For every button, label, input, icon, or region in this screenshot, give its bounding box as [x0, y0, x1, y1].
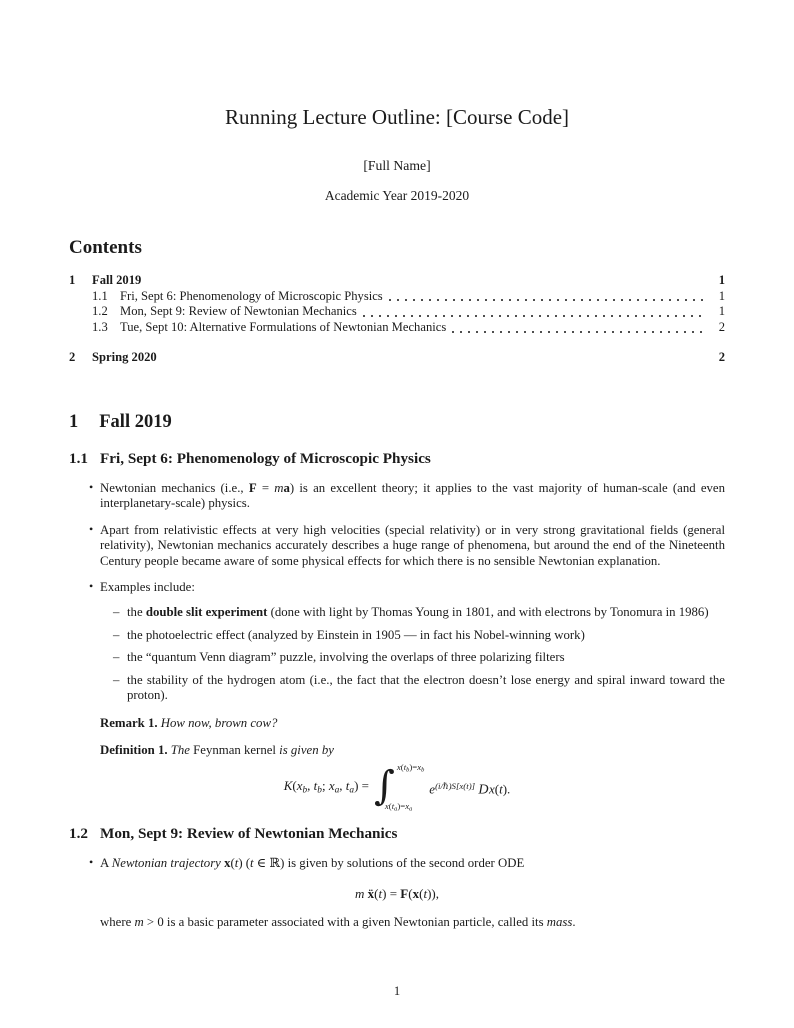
toc-entry-number: 1.2 — [92, 304, 120, 320]
feynman-kernel-equation: K(xb, tb; xa, ta) = ∫ x(tb)=xb x(ta)=xa … — [69, 760, 725, 816]
dash-icon: – — [113, 650, 119, 666]
contents-heading: Contents — [69, 236, 725, 259]
toc-entry-number: 1.1 — [92, 289, 120, 305]
integral-upper-limit: x(tb)=xb — [397, 762, 424, 776]
toc-entry-page: 2 — [711, 350, 725, 366]
integral-limits: x(tb)=xb x(ta)=xa — [397, 762, 424, 814]
subsection-heading-1-1: 1.1Fri, Sept 6: Phenomenology of Microsc… — [69, 449, 725, 469]
toc-entry-page: 2 — [711, 320, 725, 336]
bullet-icon: • — [89, 855, 93, 871]
document-title: Running Lecture Outline: [Course Code] — [69, 0, 725, 130]
toc-entry-page: 1 — [711, 289, 725, 305]
sub-item-text: the stability of the hydrogen atom (i.e.… — [127, 673, 725, 703]
integral-sign-icon: ∫ — [374, 766, 395, 806]
bullet-item: • A Newtonian trajectory x(t) (t ∈ ℝ) is… — [69, 856, 725, 872]
toc-entry-number: 1 — [69, 273, 92, 289]
sub-item-text: the photoelectric effect (analyzed by Ei… — [127, 628, 585, 642]
academic-year: Academic Year 2019-2020 — [69, 187, 725, 204]
page-number: 1 — [0, 984, 794, 1000]
toc-entry-sept-9: 1.2 Mon, Sept 9: Review of Newtonian Mec… — [69, 304, 725, 320]
toc-entry-sept-10: 1.3 Tue, Sept 10: Alternative Formulatio… — [69, 320, 725, 336]
subsection-title: Mon, Sept 9: Review of Newtonian Mechani… — [100, 825, 397, 842]
dash-icon: – — [113, 605, 119, 621]
bullet-icon: • — [89, 522, 93, 538]
bullet-text: Newtonian mechanics (i.e., F = ma) is an… — [100, 481, 725, 511]
bullet-item: • Examples include: — [69, 580, 725, 596]
bullet-text: A Newtonian trajectory x(t) (t ∈ ℝ) is g… — [100, 856, 524, 870]
sub-list-item: – the double slit experiment (done with … — [69, 605, 725, 621]
toc-entry-page: 1 — [711, 273, 725, 289]
bullet-icon: • — [89, 480, 93, 496]
toc-entry-fall-2019: 1 Fall 2019 1 — [69, 273, 725, 289]
toc-entry-label: Fall 2019 — [92, 273, 141, 289]
page-content: Running Lecture Outline: [Course Code] [… — [69, 0, 725, 930]
sub-list-item: – the stability of the hydrogen atom (i.… — [69, 673, 725, 704]
dash-icon: – — [113, 628, 119, 644]
section-title: Fall 2019 — [99, 412, 171, 432]
bullet-text: Examples include: — [100, 580, 195, 594]
document-page: Running Lecture Outline: [Course Code] [… — [0, 0, 794, 1028]
sub-item-text: the double slit experiment (done with li… — [127, 605, 709, 619]
bullet-icon: • — [89, 579, 93, 595]
equation-integrand: e(i/ℏ)S[x(t)] Dx(t). — [429, 779, 510, 798]
newton-ode-equation: m ẍ(t) = F(x(t)), — [69, 885, 725, 903]
sub-list-item: – the photoelectric effect (analyzed by … — [69, 628, 725, 644]
definition-block: Definition 1. The Feynman kernel is give… — [100, 743, 725, 759]
sub-item-text: the “quantum Venn diagram” puzzle, invol… — [127, 650, 565, 664]
toc-entry-sept-6: 1.1 Fri, Sept 6: Phenomenology of Micros… — [69, 289, 725, 305]
remark-block: Remark 1. How now, brown cow? — [100, 716, 725, 732]
subsection-number: 1.1 — [69, 449, 88, 469]
table-of-contents: 1 Fall 2019 1 1.1 Fri, Sept 6: Phenomeno… — [69, 273, 725, 366]
section-number: 1 — [69, 410, 78, 434]
toc-entry-number: 1.3 — [92, 320, 120, 336]
toc-entry-label: Tue, Sept 10: Alternative Formulations o… — [120, 320, 446, 336]
subsection-heading-1-2: 1.2Mon, Sept 9: Review of Newtonian Mech… — [69, 824, 725, 844]
section-heading-fall-2019: 1Fall 2019 — [69, 410, 725, 434]
bullet-text: Apart from relativistic effects at very … — [100, 523, 725, 568]
integral-with-limits: ∫ x(tb)=xb x(ta)=xa — [374, 762, 424, 814]
toc-entry-page: 1 — [711, 304, 725, 320]
author-name: [Full Name] — [69, 157, 725, 174]
toc-entry-label: Mon, Sept 9: Review of Newtonian Mechani… — [120, 304, 357, 320]
equation-lhs: K(xb, tb; xa, ta) = — [284, 778, 369, 799]
toc-entry-number: 2 — [69, 350, 92, 366]
toc-entry-label: Spring 2020 — [92, 350, 157, 366]
toc-entry-label: Fri, Sept 6: Phenomenology of Microscopi… — [120, 289, 383, 305]
toc-dot-leader — [389, 299, 705, 301]
mass-note-paragraph: where m > 0 is a basic parameter associa… — [100, 915, 725, 931]
dash-icon: – — [113, 673, 119, 689]
bullet-item: • Apart from relativistic effects at ver… — [69, 523, 725, 570]
subsection-title: Fri, Sept 6: Phenomenology of Microscopi… — [100, 450, 431, 467]
bullet-item: • Newtonian mechanics (i.e., F = ma) is … — [69, 481, 725, 512]
subsection-number: 1.2 — [69, 824, 88, 844]
toc-dot-leader — [452, 331, 705, 333]
sub-list-item: – the “quantum Venn diagram” puzzle, inv… — [69, 650, 725, 666]
toc-entry-spring-2020: 2 Spring 2020 2 — [69, 350, 725, 366]
toc-dot-leader — [363, 315, 705, 317]
